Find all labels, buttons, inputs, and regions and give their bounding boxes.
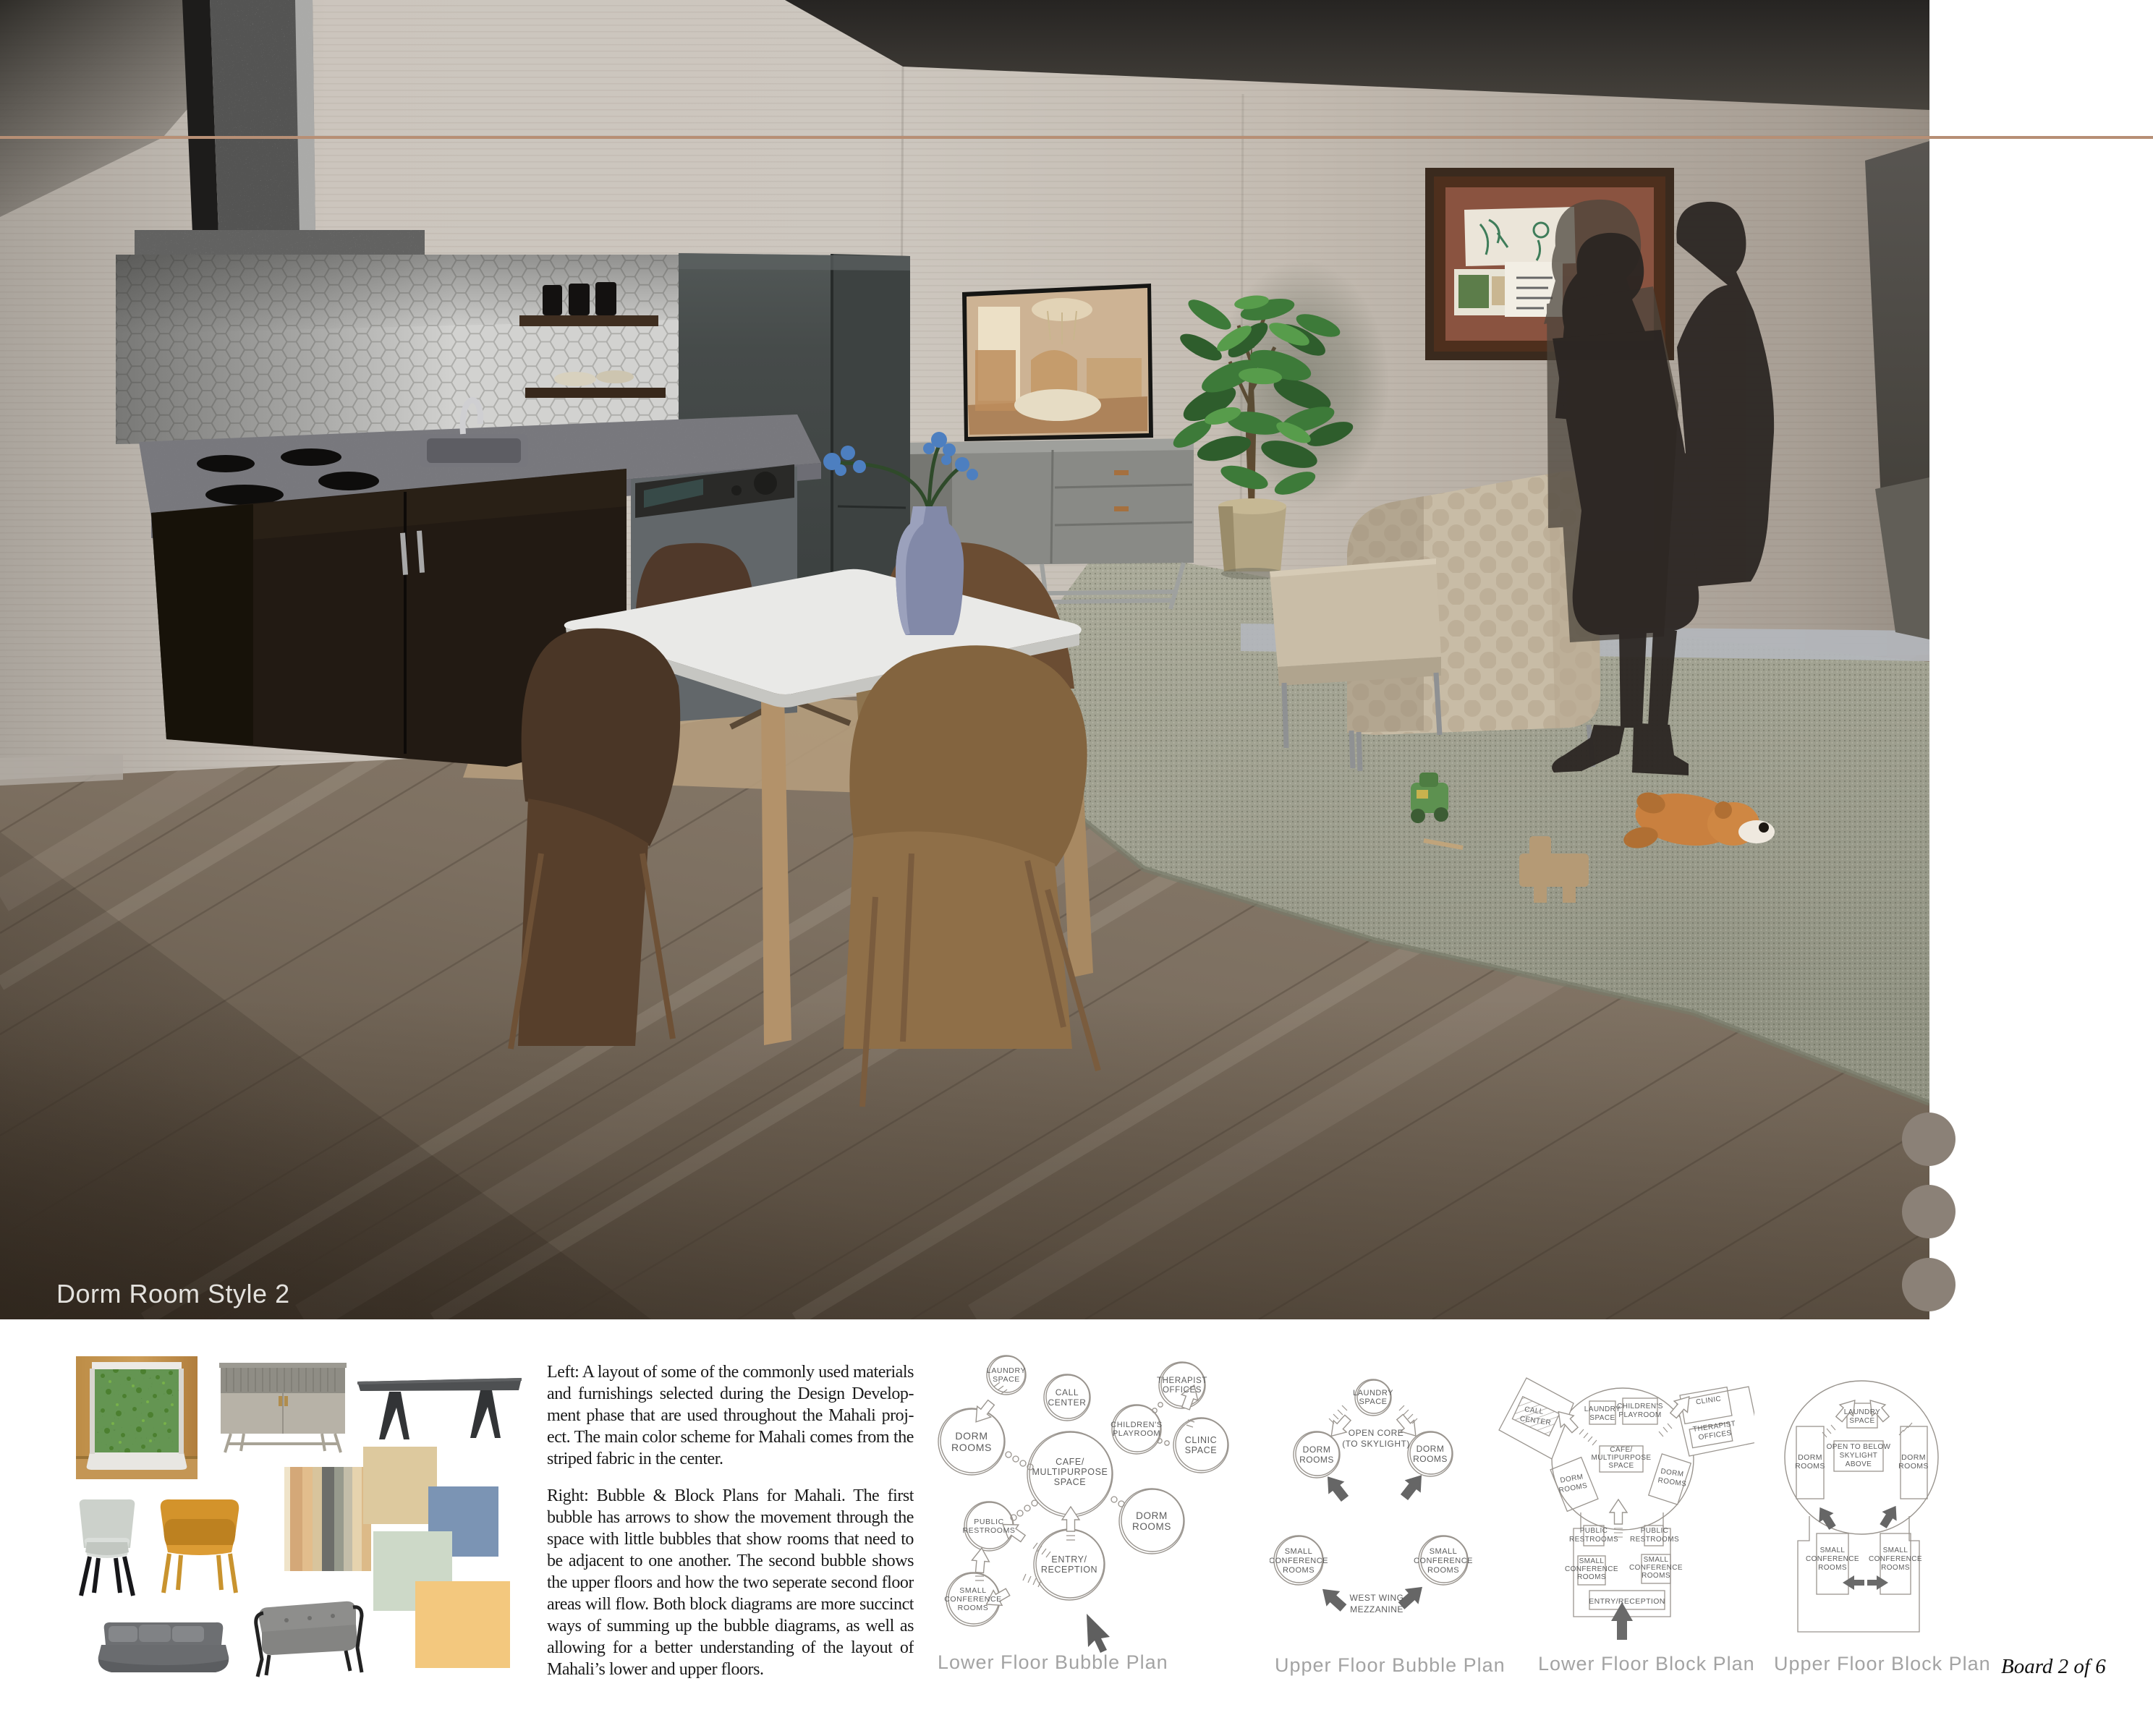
svg-text:LAUNDRY: LAUNDRY: [1584, 1405, 1621, 1413]
svg-text:CONFERENCE: CONFERENCE: [1270, 1557, 1328, 1565]
svg-text:RESTROOMS: RESTROOMS: [962, 1526, 1015, 1535]
svg-text:THERAPIST: THERAPIST: [1157, 1377, 1207, 1385]
svg-text:SMALL: SMALL: [1883, 1546, 1908, 1554]
svg-text:ROOMS: ROOMS: [958, 1604, 989, 1612]
svg-text:CONFERENCE: CONFERENCE: [1806, 1555, 1859, 1563]
svg-text:CAFE/: CAFE/: [1610, 1446, 1632, 1454]
svg-text:ENTRY/RECEPTION: ENTRY/RECEPTION: [1589, 1597, 1665, 1606]
svg-text:ROOMS: ROOMS: [1283, 1566, 1315, 1575]
svg-text:SMALL: SMALL: [1820, 1546, 1846, 1554]
svg-text:CONFERENCE: CONFERENCE: [944, 1595, 1002, 1604]
svg-text:CONFERENCE: CONFERENCE: [1629, 1564, 1683, 1572]
svg-text:RECEPTION: RECEPTION: [1041, 1565, 1097, 1575]
svg-text:RESTROOMS: RESTROOMS: [1630, 1536, 1679, 1544]
svg-text:SPACE: SPACE: [1359, 1397, 1388, 1406]
svg-text:CHILDREN'S: CHILDREN'S: [1617, 1403, 1663, 1410]
svg-text:PLAYROOM: PLAYROOM: [1113, 1429, 1160, 1438]
svg-text:ROOMS: ROOMS: [1413, 1454, 1448, 1464]
svg-text:PUBLIC: PUBLIC: [974, 1518, 1004, 1526]
svg-text:ROOMS: ROOMS: [1577, 1573, 1606, 1581]
svg-text:CONFERENCE: CONFERENCE: [1565, 1565, 1618, 1573]
svg-text:MULTIPURPOSE: MULTIPURPOSE: [1592, 1454, 1652, 1462]
svg-text:PUBLIC: PUBLIC: [1641, 1527, 1669, 1535]
svg-text:SPACE: SPACE: [1185, 1445, 1217, 1455]
svg-text:CALL: CALL: [1056, 1387, 1079, 1397]
svg-text:DORM: DORM: [1798, 1453, 1822, 1462]
svg-text:ROOMS: ROOMS: [1898, 1462, 1929, 1471]
svg-text:OPEN TO BELOW: OPEN TO BELOW: [1827, 1443, 1891, 1451]
svg-text:SMALL: SMALL: [1285, 1547, 1313, 1556]
svg-text:ROOMS: ROOMS: [1795, 1462, 1825, 1471]
svg-text:SMALL: SMALL: [1579, 1557, 1605, 1565]
svg-text:PUBLIC: PUBLIC: [1580, 1527, 1608, 1535]
svg-text:SMALL: SMALL: [1430, 1547, 1458, 1556]
svg-text:PLAYROOM: PLAYROOM: [1618, 1411, 1661, 1419]
svg-text:LAUNDRY: LAUNDRY: [987, 1366, 1026, 1375]
svg-text:ENTRY/: ENTRY/: [1051, 1554, 1087, 1565]
svg-text:LAUNDRY: LAUNDRY: [1353, 1389, 1393, 1397]
svg-text:CAFE/: CAFE/: [1056, 1457, 1084, 1467]
svg-text:ROOMS: ROOMS: [1299, 1455, 1334, 1465]
svg-text:DORM: DORM: [955, 1430, 988, 1442]
svg-text:DORM: DORM: [1901, 1453, 1926, 1462]
svg-text:SPACE: SPACE: [1608, 1462, 1634, 1470]
svg-text:CLINIC: CLINIC: [1185, 1435, 1218, 1445]
svg-text:(TO SKYLIGHT): (TO SKYLIGHT): [1342, 1439, 1410, 1449]
svg-text:CHILDREN'S: CHILDREN'S: [1111, 1421, 1163, 1429]
svg-text:ABOVE: ABOVE: [1846, 1460, 1872, 1468]
svg-text:MEZZANINE: MEZZANINE: [1350, 1604, 1404, 1614]
svg-text:RESTROOMS: RESTROOMS: [1569, 1536, 1618, 1544]
svg-text:DORM: DORM: [1417, 1444, 1445, 1454]
svg-text:SPACE: SPACE: [993, 1375, 1020, 1384]
svg-text:LAUNDRY: LAUNDRY: [1844, 1408, 1880, 1416]
svg-text:ROOMS: ROOMS: [951, 1442, 992, 1453]
svg-text:SPACE: SPACE: [1054, 1477, 1086, 1487]
svg-text:DORM: DORM: [1303, 1444, 1331, 1455]
svg-text:ROOMS: ROOMS: [1132, 1521, 1171, 1532]
svg-text:ROOMS: ROOMS: [1818, 1564, 1847, 1572]
svg-text:SPACE: SPACE: [1849, 1417, 1874, 1425]
svg-text:OPEN CORE: OPEN CORE: [1349, 1428, 1404, 1438]
svg-text:MULTIPURPOSE: MULTIPURPOSE: [1032, 1467, 1108, 1477]
svg-text:ROOMS: ROOMS: [1881, 1564, 1910, 1572]
svg-text:CENTER: CENTER: [1048, 1397, 1087, 1408]
svg-text:SMALL: SMALL: [1644, 1556, 1669, 1564]
svg-text:ROOMS: ROOMS: [1642, 1572, 1670, 1580]
svg-text:CONFERENCE: CONFERENCE: [1414, 1557, 1473, 1565]
svg-text:SMALL: SMALL: [959, 1586, 986, 1595]
svg-text:CONFERENCE: CONFERENCE: [1869, 1555, 1922, 1563]
svg-text:OFFICES: OFFICES: [1163, 1386, 1202, 1395]
svg-text:WEST WING: WEST WING: [1350, 1593, 1404, 1603]
svg-text:SKYLIGHT: SKYLIGHT: [1840, 1452, 1878, 1460]
svg-text:ROOMS: ROOMS: [1427, 1566, 1459, 1575]
svg-text:SPACE: SPACE: [1589, 1414, 1615, 1422]
svg-text:DORM: DORM: [1136, 1510, 1168, 1521]
